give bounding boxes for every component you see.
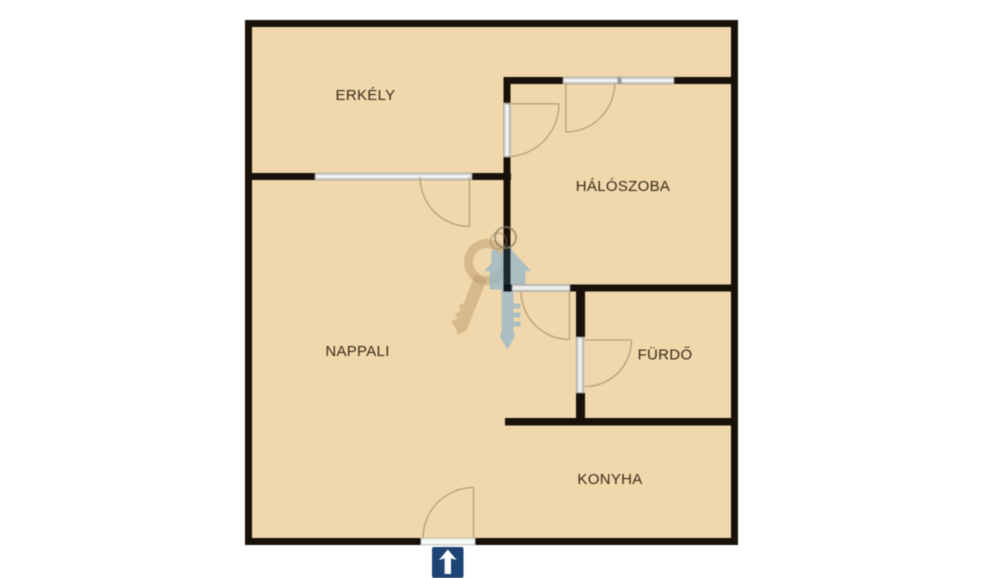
svg-text:FÜRDŐ: FÜRDŐ — [638, 346, 693, 364]
svg-text:NAPPALI: NAPPALI — [325, 343, 389, 360]
svg-text:KONYHA: KONYHA — [577, 471, 642, 488]
svg-text:ERKÉLY: ERKÉLY — [336, 87, 396, 104]
svg-text:HÁLÓSZOBA: HÁLÓSZOBA — [576, 178, 670, 195]
